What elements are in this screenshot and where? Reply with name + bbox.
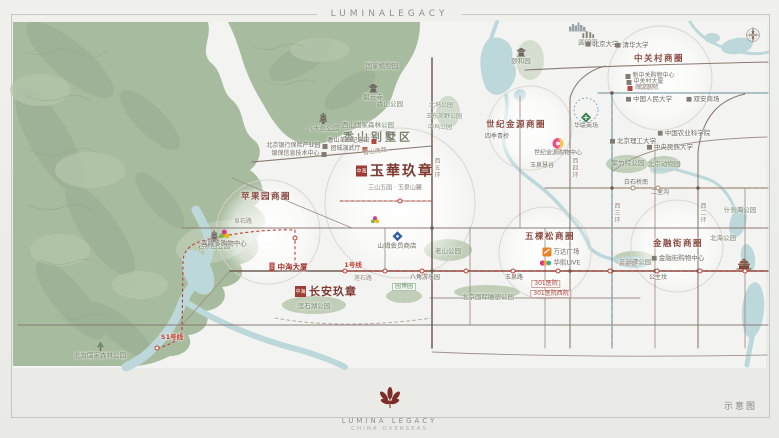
skyline-icon bbox=[569, 23, 587, 32]
poi-jinyuan-shopping-mall: 世纪金源购物中心 bbox=[534, 138, 582, 157]
poi-sijiqing-bridge-text: 四季青桥 bbox=[485, 134, 509, 140]
park-beijing-zoo-text: 北京动物园 bbox=[648, 161, 681, 168]
park-beigong-forest-text: 北宫国家森林公园 bbox=[74, 352, 126, 359]
project-changan-jiuzhang-title: 长安玖章 bbox=[309, 283, 357, 299]
district-jinrongjie: 金融街商圈 bbox=[653, 240, 703, 249]
district-pingguoyuan-text: 苹果园商圈 bbox=[241, 193, 291, 202]
location-map-page: 苹果园商圈五棵松商圈世纪金源商圈中关村商圈金融街商圈香山别墅区八大处公园西山国家… bbox=[0, 0, 779, 438]
diamond-green-icon bbox=[581, 113, 591, 123]
poi-301-hospital-west: 301医院西院 bbox=[530, 290, 571, 298]
sq-icon bbox=[322, 152, 327, 157]
park-botanical-garden-text: 国家植物园 bbox=[366, 63, 399, 70]
district-wukesong-text: 五棵松商圈 bbox=[525, 233, 575, 242]
road-lianshilu: 莲石路 bbox=[354, 276, 372, 282]
poi-xilongduo: 喜隆多购物中心 bbox=[201, 229, 247, 247]
poi-jinrongjie-mall: 金融街购物中心 bbox=[652, 255, 705, 262]
poi-sams-club-text: 山姆会员商店 bbox=[378, 242, 417, 249]
poi-jinrongjie-mall-text: 金融街购物中心 bbox=[659, 255, 705, 262]
park-yudong-text: 玉东郊野公园 bbox=[426, 114, 462, 120]
metro-station-dot bbox=[511, 269, 516, 274]
label-metro-lineS1-text: S1号线 bbox=[161, 334, 183, 341]
poi-caas: 中国农业科学院 bbox=[658, 130, 711, 137]
park-zhongwu: 中坞公园 bbox=[428, 125, 452, 131]
metro-station-dot bbox=[293, 236, 298, 241]
park-laoshan-text: 老山公园 bbox=[435, 248, 461, 255]
station-baishiqiaonan: 白石桥南 bbox=[624, 180, 648, 186]
poi-301-hospital-west-text: 301医院西院 bbox=[533, 291, 568, 297]
road-xisanhuan-text: 西三环 bbox=[613, 203, 619, 224]
park-xiangshan-text: 香山公园 bbox=[377, 101, 403, 108]
header-brand: LUMINALEGACY bbox=[317, 8, 463, 20]
flower2-icon bbox=[371, 216, 379, 224]
project-yuhua-jiuzhang-caption: 三山五园 · 玉泉山麓 bbox=[368, 183, 422, 192]
park-beiwu: 北坞公园 bbox=[429, 103, 453, 109]
park-yuanboyuan-text: 园博园 bbox=[395, 284, 413, 290]
sq-red-icon bbox=[627, 86, 632, 91]
station-yuquanlu: 玉泉路 bbox=[505, 275, 523, 281]
road-xisihuan: 西四环 bbox=[571, 158, 577, 179]
poi-renmin-university-text: 中国人民大学 bbox=[633, 96, 672, 103]
park-zizhuyuan-text: 紫竹院公园 bbox=[612, 160, 645, 167]
metro-station-dot bbox=[420, 269, 425, 274]
park-lianshihu-text: 莲石湖公园 bbox=[298, 303, 331, 310]
poi-301-hospital-text: 301医院 bbox=[534, 281, 557, 287]
tree-icon bbox=[96, 341, 105, 351]
park-xishan-forest-text: 西山国家森林公园 bbox=[342, 122, 394, 129]
park-xiangshan: 香山公园 bbox=[377, 101, 403, 108]
station-baishiqiaonan-text: 白石桥南 bbox=[624, 180, 648, 186]
poi-tsinghua-university-text: 清华大学 bbox=[623, 42, 649, 49]
metro-station-dot bbox=[655, 269, 660, 274]
poi-yuquan-huigu: 玉泉慧谷 bbox=[530, 163, 554, 169]
sq-icon bbox=[658, 131, 663, 136]
temple-icon bbox=[515, 48, 527, 57]
metro-station-dot bbox=[631, 186, 636, 191]
road-xiangshannanlu-text: 香山南路 bbox=[363, 147, 388, 156]
zhonghai-seal-icon: 中海 bbox=[295, 286, 306, 297]
map-labels-layer: 苹果园商圈五棵松商圈世纪金源商圈中关村商圈金融街商圈香山别墅区八大处公园西山国家… bbox=[0, 0, 779, 438]
poi-renmin-university: 中国人民大学 bbox=[626, 96, 672, 103]
poi-shuangan-mall-text: 双安商场 bbox=[694, 96, 720, 103]
building-red-icon bbox=[269, 263, 276, 272]
metro-station-dot bbox=[608, 269, 613, 274]
park-beijing-zoo: 北京动物园 bbox=[648, 161, 681, 168]
poi-sams-club: 山姆会员商店 bbox=[378, 231, 417, 249]
road-beisihuan-text: 北四环 bbox=[637, 85, 655, 91]
project-changan-jiuzhang: 中海长安玖章 bbox=[295, 283, 357, 299]
poi-zhonghai-tower-text: 中海大厦 bbox=[278, 263, 308, 271]
district-zhongguancun-text: 中关村商圈 bbox=[634, 55, 684, 64]
poi-bank-insurance-park-text: 北京银行保险产业园 bbox=[266, 143, 320, 149]
poi-bank-insurance-park: 北京银行保险产业园 bbox=[266, 143, 327, 149]
huaxi-icon bbox=[539, 260, 551, 267]
station-yuquanlu-text: 玉泉路 bbox=[505, 275, 523, 281]
park-badachu: 八大处公园 bbox=[307, 112, 340, 132]
park-yudong: 玉东郊野公园 bbox=[426, 114, 462, 120]
sq-icon bbox=[616, 43, 621, 48]
poi-wanda-plaza-text: 万达广场 bbox=[554, 249, 580, 256]
sq-icon bbox=[610, 139, 615, 144]
park-summer-palace: 颐和园 bbox=[511, 48, 531, 65]
poi-shuangan-mall: 双安商场 bbox=[687, 96, 720, 103]
poi-yinbao-it-center-text: 银保信息技术中心 bbox=[271, 151, 319, 157]
schematic-note: 示意图 bbox=[724, 399, 757, 412]
road-changanjie-text: 长安街 bbox=[619, 262, 637, 268]
park-beigong-forest: 北宫国家森林公园 bbox=[74, 341, 126, 359]
lumina-leaf-logo bbox=[377, 386, 403, 416]
poi-tuancheng-text: 团城演武厅 bbox=[330, 146, 360, 152]
wanda-icon bbox=[543, 248, 552, 257]
metro-station-dot bbox=[383, 269, 388, 274]
compass-icon bbox=[744, 26, 762, 44]
sq-red-icon bbox=[372, 139, 377, 144]
city-skyline bbox=[569, 23, 587, 32]
road-xisihuan-text: 西四环 bbox=[571, 158, 577, 179]
metro-station-dot bbox=[343, 269, 348, 274]
project-yuhua-jiuzhang-title: 玉華玖章 bbox=[370, 161, 434, 181]
metro-station-dot bbox=[656, 186, 661, 191]
road-fushilu-text: 阜石路 bbox=[234, 219, 252, 225]
poi-minzu-university: 中央民族大学 bbox=[647, 144, 693, 151]
sq-icon bbox=[323, 144, 328, 149]
compass-rose bbox=[744, 26, 762, 44]
metro-station-dot bbox=[698, 269, 703, 274]
poi-caas-text: 中国农业科学院 bbox=[665, 130, 711, 137]
park-beihai: 北海公园 bbox=[710, 235, 736, 242]
park-shichahai: 什刹海公园 bbox=[724, 207, 757, 214]
sq-icon bbox=[586, 42, 591, 47]
road-xierhuan: 西二环 bbox=[699, 203, 705, 224]
park-summer-palace-text: 颐和园 bbox=[511, 58, 531, 65]
metro-station-dot bbox=[556, 269, 561, 274]
footer-brand: LUMINA LEGACY bbox=[342, 417, 437, 425]
label-metro-lineS1: S1号线 bbox=[161, 334, 183, 341]
poi-tsinghua-university: 清华大学 bbox=[616, 42, 649, 49]
park-sculpture: 北京国际雕塑公园 bbox=[462, 294, 514, 301]
district-jinrongjie-text: 金融街商圈 bbox=[653, 240, 703, 249]
road-fushilu: 阜石路 bbox=[234, 219, 252, 225]
diamond-blue-icon bbox=[392, 231, 402, 241]
station-erligou: 二里沟 bbox=[651, 190, 669, 196]
poi-wanda-plaza: 万达广场 bbox=[543, 248, 580, 257]
park-laoshan: 老山公园 bbox=[435, 248, 461, 255]
label-metro-line1-text: 1号线 bbox=[344, 262, 362, 269]
poi-hualian-mall-text: 华联商场 bbox=[574, 124, 598, 130]
footer: LUMINA LEGACY CHINA OVERSEAS bbox=[0, 386, 779, 432]
shougang-mark bbox=[371, 216, 379, 224]
poi-hualian-mall: 华联商场 bbox=[574, 113, 598, 130]
zhonghai-seal-icon: 中海 bbox=[356, 165, 367, 176]
park-shichahai-text: 什刹海公园 bbox=[724, 207, 757, 214]
metro-station-dot bbox=[155, 346, 160, 351]
district-wukesong: 五棵松商圈 bbox=[525, 233, 575, 242]
park-sculpture-text: 北京国际雕塑公园 bbox=[462, 294, 514, 301]
park-badachu-text: 八大处公园 bbox=[307, 125, 340, 132]
road-xierhuan-text: 西二环 bbox=[699, 203, 705, 224]
poi-huaxi-live: 华熙LIVE bbox=[539, 260, 580, 267]
poi-huaxi-live-text: 华熙LIVE bbox=[553, 260, 580, 267]
poi-minzu-university-text: 中央民族大学 bbox=[654, 144, 693, 151]
sq-icon bbox=[626, 80, 631, 85]
poi-yuquan-huigu-text: 玉泉慧谷 bbox=[530, 163, 554, 169]
station-erligou-text: 二里沟 bbox=[651, 190, 669, 196]
road-xisanhuan: 西三环 bbox=[613, 203, 619, 224]
station-bajiao-text: 八角游乐园 bbox=[410, 275, 440, 281]
park-lianshihu: 莲石湖公园 bbox=[298, 303, 331, 310]
district-shijijinyuan: 世纪金源商圈 bbox=[486, 121, 546, 130]
jinyuan-icon bbox=[552, 138, 564, 150]
metro-station-dot bbox=[398, 199, 403, 204]
temple-icon bbox=[367, 84, 379, 93]
district-shijijinyuan-text: 世纪金源商圈 bbox=[486, 121, 546, 130]
temple-biyunsi: 碧云寺 bbox=[363, 84, 383, 101]
district-zhongguancun: 中关村商圈 bbox=[634, 55, 684, 64]
poi-jinyuan-shopping-mall-text: 世纪金源购物中心 bbox=[534, 151, 582, 157]
road-beisihuan: 北四环 bbox=[637, 85, 655, 91]
park-beiwu-text: 北坞公园 bbox=[429, 103, 453, 109]
poi-yinbao-it-center: 银保信息技术中心 bbox=[271, 151, 326, 157]
station-bajiao: 八角游乐园 bbox=[410, 275, 440, 281]
sq-icon bbox=[647, 145, 652, 150]
park-botanical-garden: 国家植物园 bbox=[366, 63, 399, 70]
road-lianshilu-text: 莲石路 bbox=[354, 276, 372, 282]
footer-subtitle: CHINA OVERSEAS bbox=[351, 426, 428, 432]
label-metro-line1: 1号线 bbox=[344, 262, 362, 269]
park-zhongwu-text: 中坞公园 bbox=[428, 125, 452, 131]
poi-xiangshan-memorial: 香山革命纪念馆 bbox=[327, 138, 376, 144]
sq-icon bbox=[652, 256, 657, 261]
sq-icon bbox=[625, 74, 630, 79]
park-zizhuyuan: 紫竹院公园 bbox=[612, 160, 645, 167]
flower-icon bbox=[219, 229, 229, 239]
poi-sijiqing-bridge: 四季青桥 bbox=[485, 134, 509, 140]
poi-xiangshan-memorial-text: 香山革命纪念馆 bbox=[327, 138, 369, 144]
poi-301-hospital: 301医院 bbox=[531, 280, 560, 288]
poi-peking-university: 北京大学 bbox=[586, 41, 619, 48]
station-gongzhufen-text: 公主坟 bbox=[649, 275, 667, 281]
project-yuhua-jiuzhang: 中海玉華玖章三山五园 · 玉泉山麓 bbox=[356, 161, 434, 192]
park-yuanboyuan: 园博园 bbox=[392, 283, 416, 291]
district-pingguoyuan: 苹果园商圈 bbox=[241, 193, 291, 202]
poi-zhonghai-tower: 中海大厦 bbox=[269, 263, 308, 272]
pagoda-icon bbox=[319, 112, 328, 124]
metro-station-dot bbox=[464, 269, 469, 274]
road-xiangshannanlu: 香山南路 bbox=[363, 147, 388, 156]
metro-station-dot bbox=[743, 269, 748, 274]
park-beihai-text: 北海公园 bbox=[710, 235, 736, 242]
sq-icon bbox=[687, 97, 692, 102]
poi-xilongduo-text: 喜隆多购物中心 bbox=[201, 240, 247, 247]
station-gongzhufen: 公主坟 bbox=[649, 275, 667, 281]
park-xishan-forest: 西山国家森林公园 bbox=[342, 122, 394, 129]
temple-biyunsi-text: 碧云寺 bbox=[363, 94, 383, 101]
sq-icon bbox=[626, 97, 631, 102]
road-changanjie: 长安街 bbox=[619, 262, 637, 268]
